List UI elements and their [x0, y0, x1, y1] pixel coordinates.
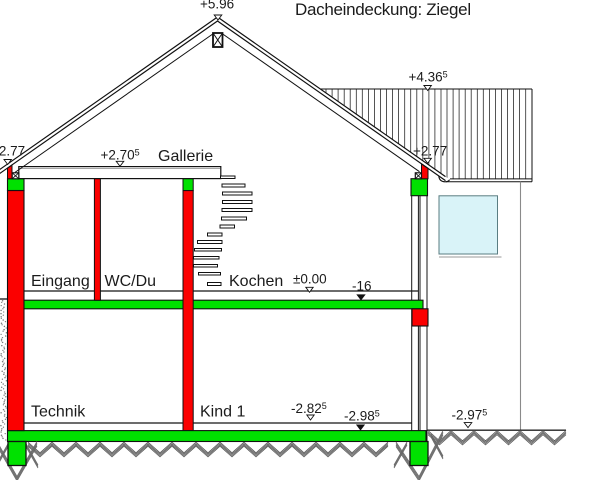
svg-text:+5.96: +5.96: [200, 0, 234, 12]
svg-text:±0.00: ±0.00: [293, 272, 327, 287]
svg-text:Technik: Technik: [31, 404, 86, 421]
svg-text:Kochen: Kochen: [229, 273, 283, 290]
svg-text:Kind 1: Kind 1: [200, 404, 245, 421]
svg-text:-2.825: -2.825: [291, 401, 327, 416]
svg-text:+2.705: +2.705: [101, 148, 140, 163]
svg-text:-16: -16: [352, 279, 372, 294]
svg-text:Eingang: Eingang: [31, 273, 90, 290]
svg-text:Dacheindeckung: Ziegel: Dacheindeckung: Ziegel: [295, 0, 471, 19]
svg-text:+2.77: +2.77: [0, 144, 25, 159]
svg-text:+2.77: +2.77: [413, 144, 447, 159]
svg-text:-2.985: -2.985: [344, 409, 380, 424]
svg-text:+4.365: +4.365: [409, 70, 448, 85]
svg-text:Gallerie: Gallerie: [158, 148, 213, 165]
svg-text:-2.975: -2.975: [452, 408, 488, 423]
svg-text:WC/Du: WC/Du: [105, 273, 157, 290]
